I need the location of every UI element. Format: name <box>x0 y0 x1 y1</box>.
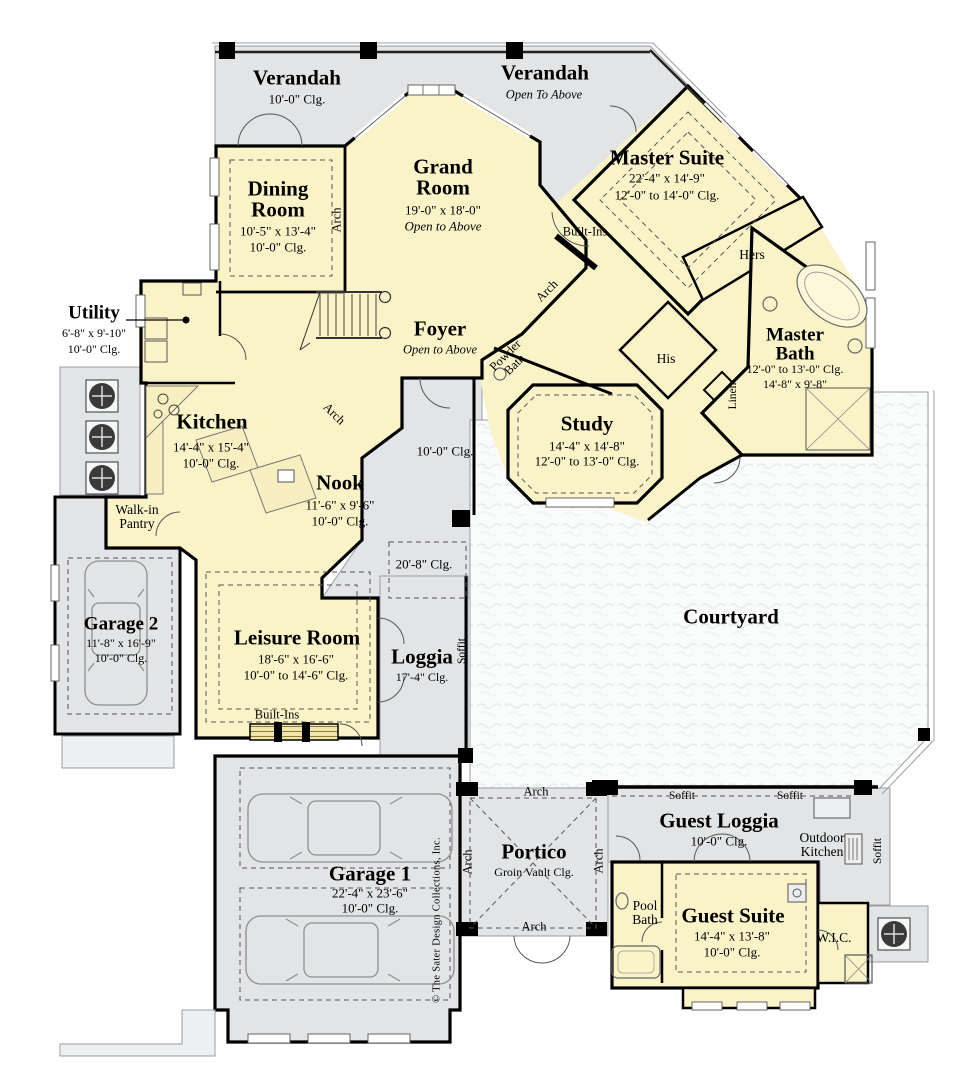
floor-plan-page: Verandah 10'-0" Clg. Verandah Open To Ab… <box>0 0 960 1084</box>
guest-suite-dim: 14'-4" x 13'-8" <box>694 929 770 942</box>
garage2-apron <box>62 736 174 768</box>
guest-loggia-clg: 10'-0" Clg. <box>691 834 748 847</box>
room-label-kitchen: Kitchen <box>176 411 247 432</box>
label-his: His <box>657 352 676 366</box>
dining-clg: 10'-0" Clg. <box>250 240 307 253</box>
leisure-dim: 18'-6" x 16'-6" <box>258 652 334 665</box>
grand-dim: 19'-0" x 18'-0" <box>405 203 481 216</box>
label-arch-dining: Arch <box>331 208 344 233</box>
grand-note: Open to Above <box>404 219 481 232</box>
room-label-garage1: Garage 1 <box>329 863 411 884</box>
label-arch-portico-bottom: Arch <box>522 921 547 934</box>
master-bath-dim: 14'-8" x 9'-8" <box>763 378 827 390</box>
label-soffit-right: Soffit <box>873 838 885 864</box>
room-label-guest-loggia: Guest Loggia <box>659 810 779 831</box>
foyer-note: Open to Above <box>403 344 477 357</box>
kitchen-clg: 10'-0" Clg. <box>183 456 240 469</box>
study-dim: 14'-4" x 14'-8" <box>549 439 625 452</box>
room-label-master-bath: Master Bath <box>755 326 835 365</box>
garage2-clg: 10'-0" Clg. <box>95 652 147 664</box>
room-label-guest-suite: Guest Suite <box>681 905 784 926</box>
label-hers: Hers <box>739 248 765 262</box>
entry-walkway <box>60 1010 215 1056</box>
guest-suite-clg: 10'-0" Clg. <box>704 945 761 958</box>
room-label-verandah-right: Verandah <box>501 62 589 83</box>
room-label-foyer: Foyer <box>414 318 466 339</box>
utility-clg: 10'-0" Clg. <box>68 343 120 355</box>
loggia-clg: 17'-4" Clg. <box>396 671 448 683</box>
room-label-garage2: Garage 2 <box>84 614 158 633</box>
dining-dim: 10'-5" x 13'-4" <box>240 224 316 237</box>
label-arch-portico-right: Arch <box>593 849 606 874</box>
room-label-utility: Utility <box>68 303 120 322</box>
room-label-study: Study <box>561 413 614 434</box>
room-label-portico: Portico <box>501 841 566 862</box>
garage1-dim: 22'-4" x 23'-6" <box>332 886 408 899</box>
room-label-verandah-left: Verandah <box>253 67 341 88</box>
room-label-grand: Grand Room <box>401 157 485 200</box>
verandah-right-note: Open To Above <box>506 89 582 102</box>
leisure-clg: 10'-0" to 14'-6" Clg. <box>244 668 349 681</box>
room-label-pantry: Walk-in Pantry <box>104 503 170 531</box>
nook-clg: 10'-0" Clg. <box>312 514 369 527</box>
master-bath-clg: 12'-0" to 13'-0" Clg. <box>747 363 844 375</box>
room-label-outdoor-kitchen: Outdoor Kitchen <box>788 831 856 859</box>
room-label-leisure: Leisure Room <box>234 627 360 648</box>
label-soffit-guest-1: Soffit <box>669 791 695 803</box>
room-label-nook: Nook <box>316 472 364 493</box>
room-label-wic: W.I.C. <box>816 931 851 945</box>
room-label-loggia: Loggia <box>391 646 453 667</box>
copyright-text: © The Sater Design Collections, Inc. <box>433 837 444 1003</box>
room-label-courtyard: Courtyard <box>683 606 779 627</box>
garage2-dim: 11'-8" x 16'-9" <box>86 637 156 649</box>
label-built-ins-leisure: Built-Ins <box>255 709 299 722</box>
kitchen-dim: 14'-4" x 15'-4" <box>173 440 249 453</box>
nook-dim: 11'-6" x 9'-6" <box>306 498 375 511</box>
portico-clg: Groin Vault Clg. <box>494 866 573 878</box>
label-high-clg: 20'-8" Clg. <box>396 557 453 570</box>
label-soffit-loggia: Soffit <box>457 638 469 664</box>
verandah-left-clg: 10'-0" Clg. <box>269 92 326 105</box>
master-suite-clg: 12'-0" to 14'-0" Clg. <box>615 188 720 201</box>
label-arch-portico-top: Arch <box>524 786 549 799</box>
garage1-clg: 10'-0" Clg. <box>342 901 399 914</box>
room-label-dining: Dining Room <box>234 179 322 222</box>
label-linen: Linen <box>728 383 740 410</box>
study-clg: 12'-0" to 13'-0" Clg. <box>535 454 640 467</box>
room-label-pool-bath: Pool Bath <box>624 899 666 927</box>
label-soffit-guest-2: Soffit <box>777 791 803 803</box>
label-gallery-clg: 10'-0" Clg. <box>417 444 474 457</box>
label-built-ins-master: Built-Ins <box>563 226 607 239</box>
utility-dim: 6'-8" x 9'-10" <box>62 327 126 339</box>
label-arch-portico-left: Arch <box>462 850 475 875</box>
room-label-master-suite: Master Suite <box>610 147 725 168</box>
master-suite-dim: 22'-4" x 14'-9" <box>629 171 705 184</box>
